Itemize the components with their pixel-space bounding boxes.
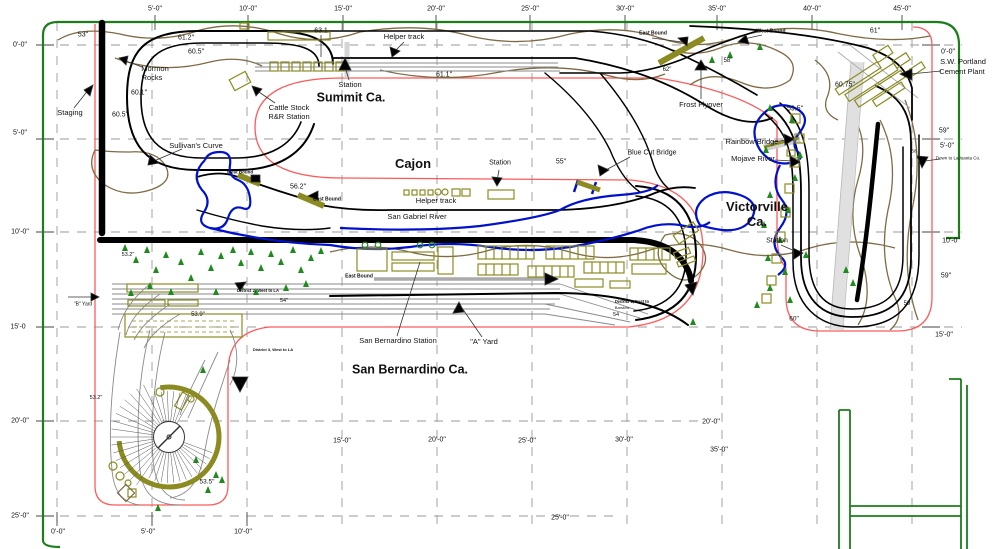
blue-cut-arrow: [598, 165, 609, 176]
label-elev-56-2: 56.2": [290, 183, 306, 190]
benchwork-frame: [839, 379, 967, 549]
label-ruler-top-40: 40'-0": [803, 5, 821, 12]
label-elev-58: 58": [724, 58, 733, 64]
room-border: [43, 22, 967, 549]
label-elev-54b: 54: [613, 313, 619, 319]
summit-loop-inner: [141, 43, 319, 158]
label-summit-ca: Summit Ca.: [317, 91, 386, 104]
label-elev-59-5: 59.5": [787, 105, 803, 112]
label-ruler-mid-20: 20'-0": [428, 436, 446, 443]
label-cajon: Cajon: [395, 157, 431, 171]
label-elev-53-staging: 53": [78, 31, 88, 38]
trees: [122, 43, 856, 511]
buildings: [109, 23, 928, 501]
label-cattle-stock-2: R&R Station: [268, 113, 309, 121]
label-b-yard: "B" Yard: [74, 302, 92, 307]
label-ruler-bottom-0: 0'-0": [51, 528, 65, 535]
label-frost-flyover: Frost Flyover: [679, 101, 723, 109]
label-ruler-bottom-10: 10'-0": [234, 528, 252, 535]
label-ruler-bottom-5: 5'-0": [141, 528, 155, 535]
label-ruler-top-25: 25'-0": [521, 5, 539, 12]
label-ruler-top-5: 5'-0": [148, 5, 162, 12]
label-summit-station: Station: [338, 81, 361, 89]
label-cement-plant-line1: S.W. Portland: [940, 58, 986, 66]
label-elev-58-hill: 58: [911, 150, 916, 155]
label-ruler-left-25: 25'-0": [11, 512, 29, 519]
label-staging: Staging: [57, 109, 82, 117]
summit-loop-outer: [127, 31, 333, 170]
label-ruler-right-10: 10'-0": [942, 237, 960, 244]
cement-plant-arrow: [900, 69, 912, 80]
label-blue-cut-bridge: Blue Cut Bridge: [627, 149, 676, 156]
label-ruler-top-30: 30'-0": [616, 5, 634, 12]
san-gabriel-river-lower: [210, 222, 710, 250]
label-elev-60-5a: 60.5": [188, 48, 204, 55]
label-district-2: District 2, West to LA: [237, 289, 279, 293]
label-a-yard: "A" Yard: [470, 338, 498, 346]
label-ruler-left-0: 0'-0": [13, 41, 27, 48]
west-bound-cajon-marker: [251, 175, 260, 182]
label-ruler-right-0: 0'-0": [941, 48, 955, 55]
label-sullivans-curve: Sullivan's Curve: [169, 142, 223, 150]
label-ruler-top-45: 45'-0": [893, 5, 911, 12]
label-ruler-mid-25: 25'-0": [518, 437, 536, 444]
label-ruler-mid-30: 30'-0": [615, 436, 633, 443]
label-ruler-bottom-25: 25'-0": [551, 514, 569, 521]
label-elev-61-1: 61.1": [436, 71, 452, 78]
label-cajon-station: Station: [489, 159, 511, 166]
helper-summit-arrow: [390, 47, 400, 57]
arrows-leaders: [68, 35, 941, 392]
label-helper-track-cajon: Helper track: [416, 197, 456, 205]
label-cement-plant-line2: Cement Plant: [939, 68, 984, 76]
label-elev-61: 61": [870, 27, 880, 34]
label-san-bernardino-station: San Bernardino Station: [359, 337, 437, 345]
label-ruler-mid-20b: 20'-0": [702, 418, 720, 425]
label-victorville-ca-1: Victorville: [726, 200, 788, 214]
label-ruler-mid-15: 15'-0": [333, 437, 351, 444]
label-elev-55: 55": [556, 158, 566, 165]
label-ruler-left-15: 15'-0: [10, 323, 25, 330]
label-mormon-rocks-2: Rocks: [142, 74, 163, 82]
label-district-3: District 3, West to LA: [253, 348, 293, 352]
wing-down-arrow: [232, 377, 248, 392]
label-ruler-left-20: 20'-0": [11, 417, 29, 424]
track-plan-page: 5'-0"10'-0"15'-0"20'-0"25'-0"30'-0"35'-0…: [0, 0, 996, 549]
label-elev-61-2: 61.2": [178, 34, 194, 41]
label-elev-60-1: 60.1": [131, 89, 147, 96]
label-elev-60: 60": [789, 317, 799, 324]
label-rainbow-bridge: Rainbow Bridge: [726, 138, 779, 146]
label-ruler-top-15: 15'-0": [334, 5, 352, 12]
label-elev-59-right-mid: 59": [941, 272, 951, 279]
label-victorville-ca-2: Ca.: [747, 215, 767, 229]
label-elev-63-1: 63.1: [314, 27, 328, 34]
roundhouse-turntable: [111, 379, 227, 495]
ruler-ticks: [36, 15, 940, 526]
label-ruler-left-5: 5'-0": [13, 129, 27, 136]
label-helper-track-summit: Helper track: [384, 33, 424, 41]
label-elev-53-2a: 53.2": [122, 253, 135, 259]
turntable-bridge: [158, 426, 180, 448]
label-san-gabriel-river: San Gabriel River: [387, 213, 446, 221]
label-east-bound-sb: East Bound: [345, 274, 373, 279]
label-ruler-right-15: 15'-0": [935, 331, 953, 338]
label-district-1b: Barstow: [615, 306, 629, 310]
label-ruler-left-10: 10'-0": [11, 228, 29, 235]
label-district-1: District 1, East to: [615, 300, 649, 304]
label-elev-62: 62": [663, 67, 672, 73]
label-elev-53-9: 53.9": [191, 312, 205, 318]
cement-plant-buildings: [831, 35, 928, 120]
main-tracks: [100, 23, 919, 327]
staging-arrow: [84, 85, 93, 96]
victorville-siding-thick: [857, 124, 878, 300]
label-east-bound-cajon: East Bound: [313, 197, 341, 202]
label-ruler-top-35: 35'-0": [708, 5, 726, 12]
turntable-spokes: [111, 385, 212, 485]
label-ruler-top-20: 20'-0": [427, 5, 445, 12]
label-ruler-mid-35: 35'-0": [710, 446, 728, 453]
cajon-station-arrow: [492, 177, 502, 186]
label-elev-59-right-top: 59": [939, 127, 949, 134]
label-west-bound-cajon: West Bound: [227, 171, 253, 176]
label-down-to-lajuanta: Down to LaJuanta Co.: [936, 157, 981, 162]
label-elev-53-5: 53.5": [200, 480, 215, 487]
label-ruler-top-10: 10'-0": [239, 5, 257, 12]
label-cattle-stock-1: Cattle Stock: [269, 104, 309, 112]
label-west-bound-top: West Bound: [756, 29, 785, 34]
label-elev-60-5b: 60.5": [112, 111, 128, 118]
label-elev-54a: 54": [280, 299, 288, 305]
san-gabriel-river-upper: [340, 185, 658, 230]
label-victorville-station: Station: [766, 237, 788, 244]
label-ruler-right-5: 5'-0": [940, 142, 954, 149]
label-mormon-rocks-1: Mormon: [141, 65, 169, 73]
label-east-bound-top: East Bound: [639, 31, 667, 36]
label-mojave-river: Mojave River: [731, 155, 775, 163]
sullivans-arrow: [148, 155, 159, 165]
label-elev-59-hill: 59: [904, 301, 911, 307]
label-elev-53-2b: 53.2": [90, 396, 103, 402]
cattle-arrow: [252, 86, 262, 96]
label-elev-60-75: 60.75": [835, 81, 855, 88]
label-san-bernardino-ca: San Bernardino Ca.: [352, 363, 468, 376]
